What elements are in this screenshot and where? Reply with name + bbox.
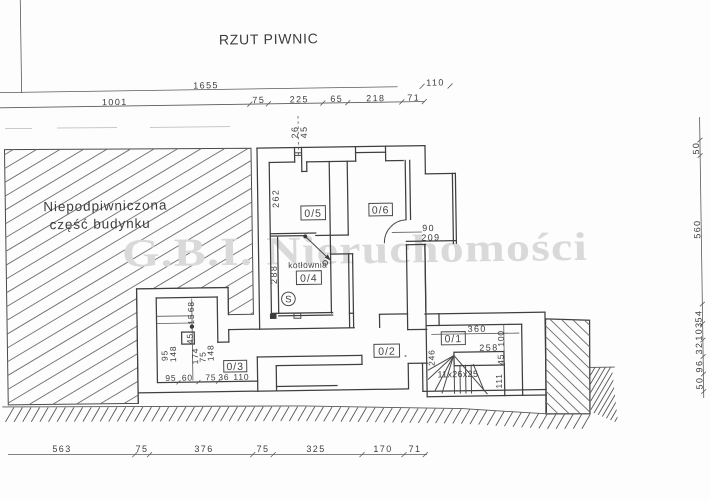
svg-text:170: 170 — [373, 444, 392, 454]
svg-text:0/5: 0/5 — [304, 208, 322, 220]
svg-text:0/3: 0/3 — [226, 361, 244, 373]
svg-text:0/1: 0/1 — [444, 333, 462, 345]
svg-text:11x26x25: 11x26x25 — [437, 369, 478, 380]
svg-text:100: 100 — [496, 330, 506, 347]
svg-text:148: 148 — [168, 346, 178, 363]
svg-text:Niepodpiwniczona: Niepodpiwniczona — [43, 197, 167, 214]
svg-text:103: 103 — [694, 321, 704, 340]
svg-text:32: 32 — [694, 342, 704, 355]
svg-text:376: 376 — [194, 444, 213, 454]
svg-text:45: 45 — [185, 333, 195, 344]
svg-text:1001: 1001 — [102, 97, 128, 107]
svg-text:S: S — [285, 294, 292, 305]
svg-text:360: 360 — [468, 324, 487, 334]
svg-text:262: 262 — [271, 189, 281, 208]
svg-text:45: 45 — [299, 125, 309, 138]
svg-text:148: 148 — [205, 344, 215, 361]
svg-text:75: 75 — [257, 444, 270, 454]
svg-text:71: 71 — [409, 444, 422, 454]
svg-text:225: 225 — [290, 94, 309, 104]
svg-text:kotłownia: kotłownia — [288, 260, 327, 271]
svg-text:95: 95 — [165, 373, 176, 383]
svg-text:75: 75 — [252, 95, 265, 105]
svg-text:60: 60 — [182, 373, 193, 383]
svg-text:65: 65 — [330, 94, 343, 104]
svg-text:218: 218 — [366, 93, 385, 103]
svg-text:246: 246 — [426, 349, 436, 366]
svg-text:325: 325 — [306, 444, 325, 454]
svg-text:96: 96 — [694, 360, 704, 373]
svg-text:71: 71 — [407, 93, 420, 103]
svg-text:563: 563 — [52, 444, 71, 454]
svg-text:G.B.I. Nieruchomości: G.B.I. Nieruchomości — [122, 224, 589, 276]
svg-text:0/2: 0/2 — [378, 346, 396, 358]
svg-text:0/6: 0/6 — [372, 204, 390, 216]
svg-text:75: 75 — [136, 444, 149, 454]
svg-text:36: 36 — [218, 372, 229, 382]
svg-text:68: 68 — [186, 301, 196, 312]
svg-text:0/4: 0/4 — [300, 273, 318, 285]
svg-text:RZUT PIWNIC: RZUT PIWNIC — [219, 30, 320, 47]
svg-text:288: 288 — [269, 265, 279, 284]
svg-text:15: 15 — [186, 314, 196, 325]
svg-text:111: 111 — [494, 373, 504, 388]
svg-text:560: 560 — [692, 219, 702, 238]
svg-text:50: 50 — [694, 377, 704, 390]
svg-text:110: 110 — [233, 372, 249, 382]
svg-text:1655: 1655 — [193, 80, 219, 90]
svg-text:75: 75 — [205, 372, 216, 382]
svg-text:50: 50 — [691, 142, 701, 155]
svg-text:110: 110 — [426, 77, 445, 87]
svg-text:54: 54 — [693, 310, 703, 323]
